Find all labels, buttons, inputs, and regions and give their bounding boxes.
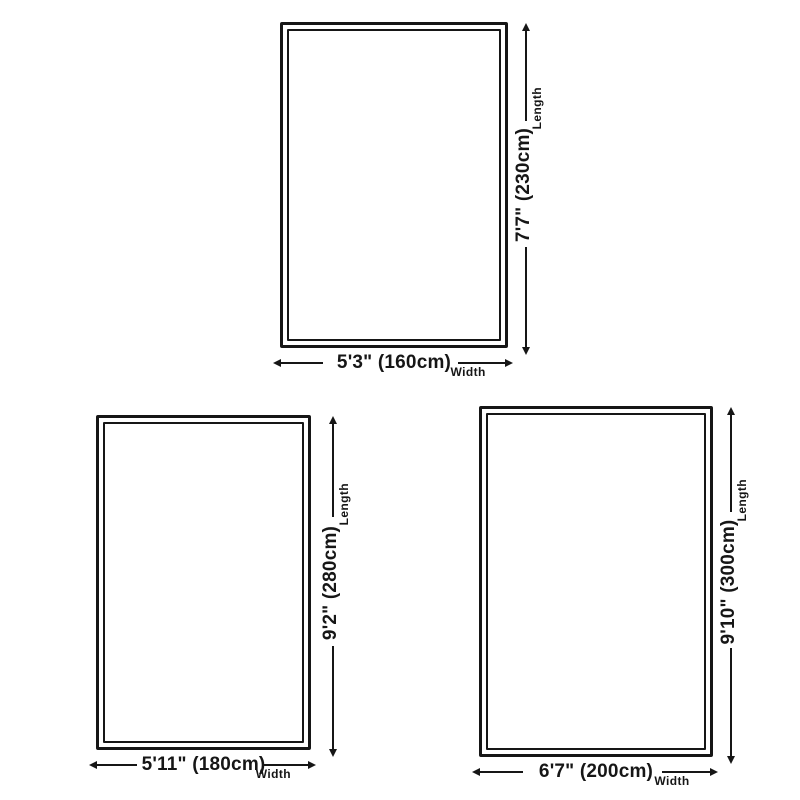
length-value: 9'2" (280cm)	[320, 525, 342, 639]
arrow-right-icon	[505, 359, 513, 367]
width-arrow-left-segment	[280, 362, 323, 364]
arrow-right-icon	[308, 761, 316, 769]
arrow-up-icon	[329, 416, 337, 424]
width-value: 6'7" (200cm)	[539, 761, 653, 783]
rug-outline	[479, 406, 713, 757]
length-arrow-upper-segment	[730, 414, 732, 512]
arrow-down-icon	[727, 756, 735, 764]
width-axis-label: Width	[444, 365, 492, 379]
width-arrow-right-segment	[662, 771, 711, 773]
length-annotation: Length 9'2" (280cm)	[324, 415, 376, 750]
arrow-left-icon	[472, 768, 480, 776]
rug-inner-outline	[103, 422, 304, 743]
length-arrow-upper-segment	[525, 30, 527, 121]
arrow-left-icon	[273, 359, 281, 367]
width-arrow-right-segment	[264, 764, 309, 766]
length-axis-label: Length	[337, 483, 351, 525]
length-arrow-upper-segment	[332, 423, 334, 517]
size-chart-canvas: Length 7'7" (230cm) 5'3" (160cm) Width	[0, 0, 800, 800]
arrow-left-icon	[89, 761, 97, 769]
length-value: 7'7" (230cm)	[513, 128, 535, 242]
width-axis-label: Width	[251, 767, 296, 781]
arrow-right-icon	[710, 768, 718, 776]
rug-inner-outline	[287, 29, 501, 341]
rug-outline	[280, 22, 508, 348]
length-value: 9'10" (300cm)	[718, 519, 740, 644]
rug-outline	[96, 415, 311, 750]
length-annotation: Length 7'7" (230cm)	[517, 22, 569, 348]
arrow-down-icon	[329, 749, 337, 757]
length-annotation: Length 9'10" (300cm)	[722, 406, 774, 757]
length-axis-label: Length	[530, 87, 544, 129]
length-axis-label: Length	[735, 479, 749, 521]
width-arrow-left-segment	[479, 771, 523, 773]
width-annotation: 6'7" (200cm) Width	[479, 765, 713, 797]
length-arrow-lower-segment	[332, 646, 334, 750]
length-arrow-lower-segment	[525, 247, 527, 348]
width-value: 5'11" (180cm)	[142, 754, 266, 776]
width-axis-label: Width	[647, 774, 696, 788]
rug-inner-outline	[486, 413, 706, 750]
length-arrow-lower-segment	[730, 648, 732, 757]
width-value: 5'3" (160cm)	[337, 352, 451, 374]
arrow-up-icon	[522, 23, 530, 31]
width-arrow-left-segment	[96, 764, 137, 766]
arrow-down-icon	[522, 347, 530, 355]
width-annotation: 5'3" (160cm) Width	[280, 356, 508, 388]
width-arrow-right-segment	[458, 362, 506, 364]
arrow-up-icon	[727, 407, 735, 415]
width-annotation: 5'11" (180cm) Width	[96, 758, 311, 790]
